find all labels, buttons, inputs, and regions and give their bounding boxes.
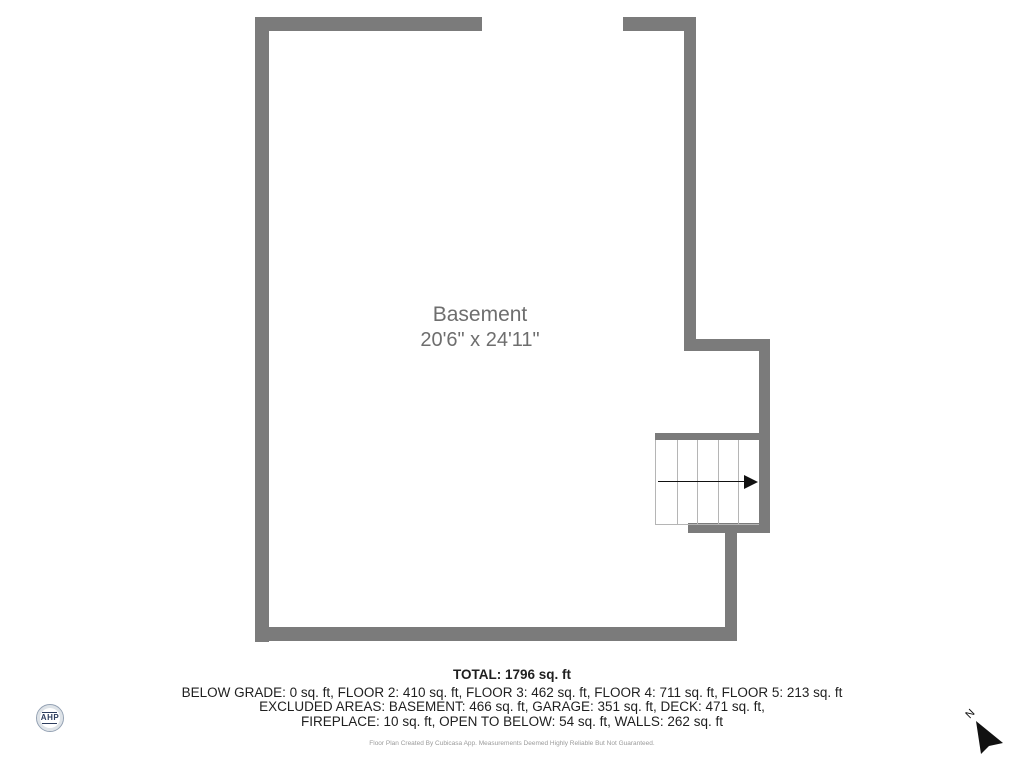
room-name: Basement bbox=[320, 303, 640, 327]
area-summary: TOTAL: 1796 sq. ft BELOW GRADE: 0 sq. ft… bbox=[0, 668, 1024, 752]
excluded-areas-text-line2: FIREPLACE: 10 sq. ft, OPEN TO BELOW: 54 … bbox=[0, 715, 1024, 730]
room-dimensions: 20'6" x 24'11" bbox=[320, 329, 640, 352]
floor-plan-page: Basement 20'6" x 24'11" TOTAL: 1796 sq. … bbox=[0, 0, 1024, 768]
ahp-logo-inner: AHP bbox=[41, 711, 59, 725]
stair-tread-line bbox=[697, 440, 698, 525]
stair-tread-line bbox=[718, 440, 719, 525]
north-label: N bbox=[963, 707, 977, 721]
logo-rule-bottom bbox=[42, 723, 57, 724]
stair-direction-arrow-icon bbox=[744, 475, 758, 489]
disclaimer-text: Floor Plan Created By Cubicasa App. Meas… bbox=[0, 737, 1024, 752]
wall-top-left-segment bbox=[255, 17, 482, 31]
wall-left bbox=[255, 17, 269, 642]
logo-text: AHP bbox=[41, 714, 59, 722]
room-label: Basement 20'6" x 24'11" bbox=[320, 303, 640, 352]
excluded-areas-text-line1: EXCLUDED AREAS: BASEMENT: 466 sq. ft, GA… bbox=[0, 700, 1024, 715]
floor-areas-text: BELOW GRADE: 0 sq. ft, FLOOR 2: 410 sq. … bbox=[0, 686, 1024, 701]
wall-inner-lower bbox=[725, 533, 737, 641]
stair-tread-line bbox=[738, 440, 739, 525]
north-arrow-icon: N bbox=[958, 702, 1008, 762]
wall-stairs-top bbox=[655, 433, 759, 440]
wall-right-upper bbox=[684, 17, 696, 351]
staircase bbox=[655, 440, 759, 525]
stair-direction-line bbox=[658, 481, 748, 482]
wall-right-outer bbox=[759, 339, 770, 533]
wall-right-step bbox=[684, 339, 770, 351]
stair-tread-line bbox=[677, 440, 678, 525]
wall-bottom bbox=[255, 627, 737, 641]
total-area-text: TOTAL: 1796 sq. ft bbox=[0, 668, 1024, 683]
ahp-logo: AHP bbox=[36, 704, 64, 732]
